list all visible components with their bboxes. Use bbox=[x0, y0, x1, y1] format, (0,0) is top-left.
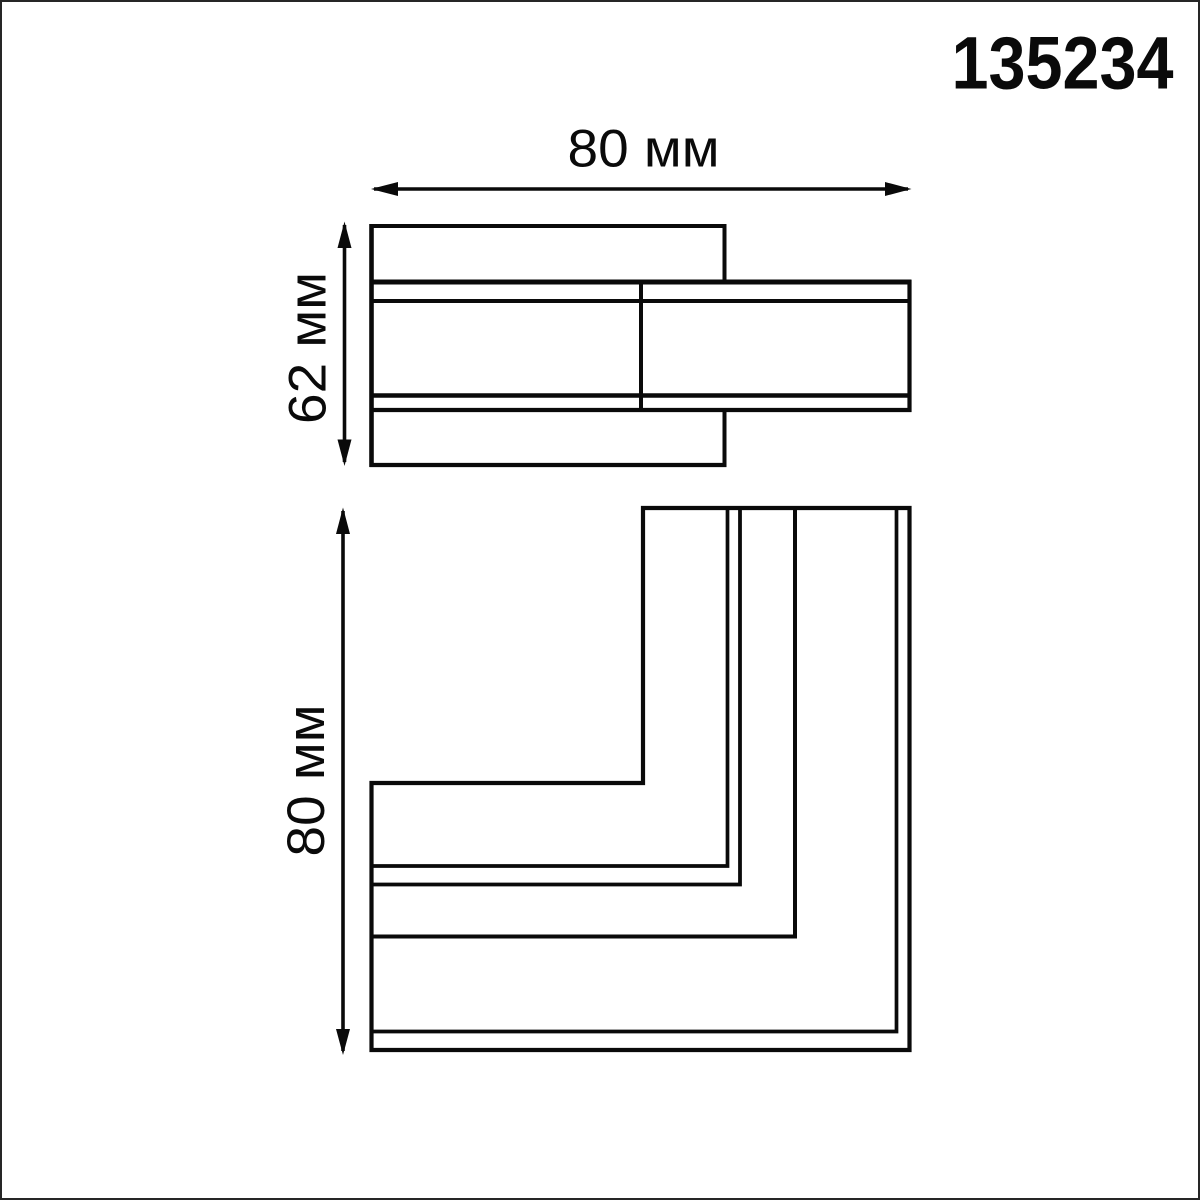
svg-text:80 мм: 80 мм bbox=[277, 705, 336, 857]
svg-text:80 мм: 80 мм bbox=[568, 120, 720, 179]
svg-text:135234: 135234 bbox=[952, 22, 1174, 105]
svg-text:62 мм: 62 мм bbox=[279, 272, 338, 424]
